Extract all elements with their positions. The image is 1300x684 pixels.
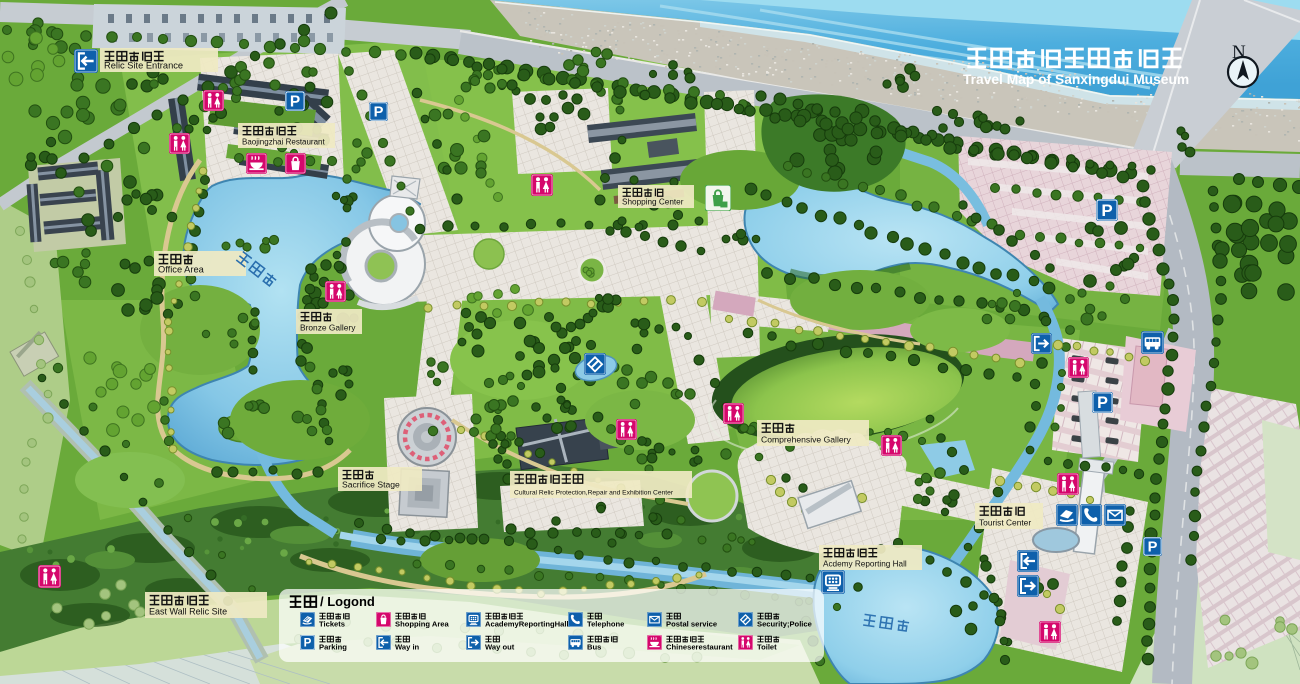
svg-text:Comprehensive Gallery: Comprehensive Gallery xyxy=(761,435,851,445)
svg-text:Way out: Way out xyxy=(485,643,515,652)
svg-text:East Wall Relic Site: East Wall Relic Site xyxy=(149,607,227,617)
svg-text:Baojingzhai Restaurant: Baojingzhai Restaurant xyxy=(242,138,325,147)
svg-text:Relic Site Entrance: Relic Site Entrance xyxy=(104,61,183,71)
svg-text:Tourist Center: Tourist Center xyxy=(979,518,1031,528)
svg-text:Sacrifice Stage: Sacrifice Stage xyxy=(342,480,400,490)
svg-text:Toilet: Toilet xyxy=(757,643,777,652)
svg-text:Parking: Parking xyxy=(319,643,347,652)
svg-text:Shopping Area: Shopping Area xyxy=(395,620,449,629)
svg-text:Postal service: Postal service xyxy=(666,620,717,629)
svg-text:Travel Map of Sanxingdui Museu: Travel Map of Sanxingdui Museum xyxy=(963,72,1189,87)
svg-text:Bronze Gallery: Bronze Gallery xyxy=(300,323,356,333)
svg-text:Telephone: Telephone xyxy=(587,620,624,629)
svg-text:Bus: Bus xyxy=(587,643,601,652)
svg-text:Acdemy Reporting Hall: Acdemy Reporting Hall xyxy=(823,560,907,569)
svg-text:Chineserestaurant: Chineserestaurant xyxy=(666,643,733,652)
svg-text:AcademyReportingHall: AcademyReportingHall xyxy=(485,620,569,629)
svg-text:Way in: Way in xyxy=(395,643,420,652)
svg-text:Office Area: Office Area xyxy=(158,265,205,275)
svg-text:/ Logond: / Logond xyxy=(320,594,375,609)
svg-text:Shopping Center: Shopping Center xyxy=(622,198,684,207)
svg-text:Cultural Relic Protection,Repa: Cultural Relic Protection,Repair and Exh… xyxy=(514,490,674,497)
svg-text:Security;Police: Security;Police xyxy=(757,620,812,629)
svg-text:Tickets: Tickets xyxy=(319,620,345,629)
